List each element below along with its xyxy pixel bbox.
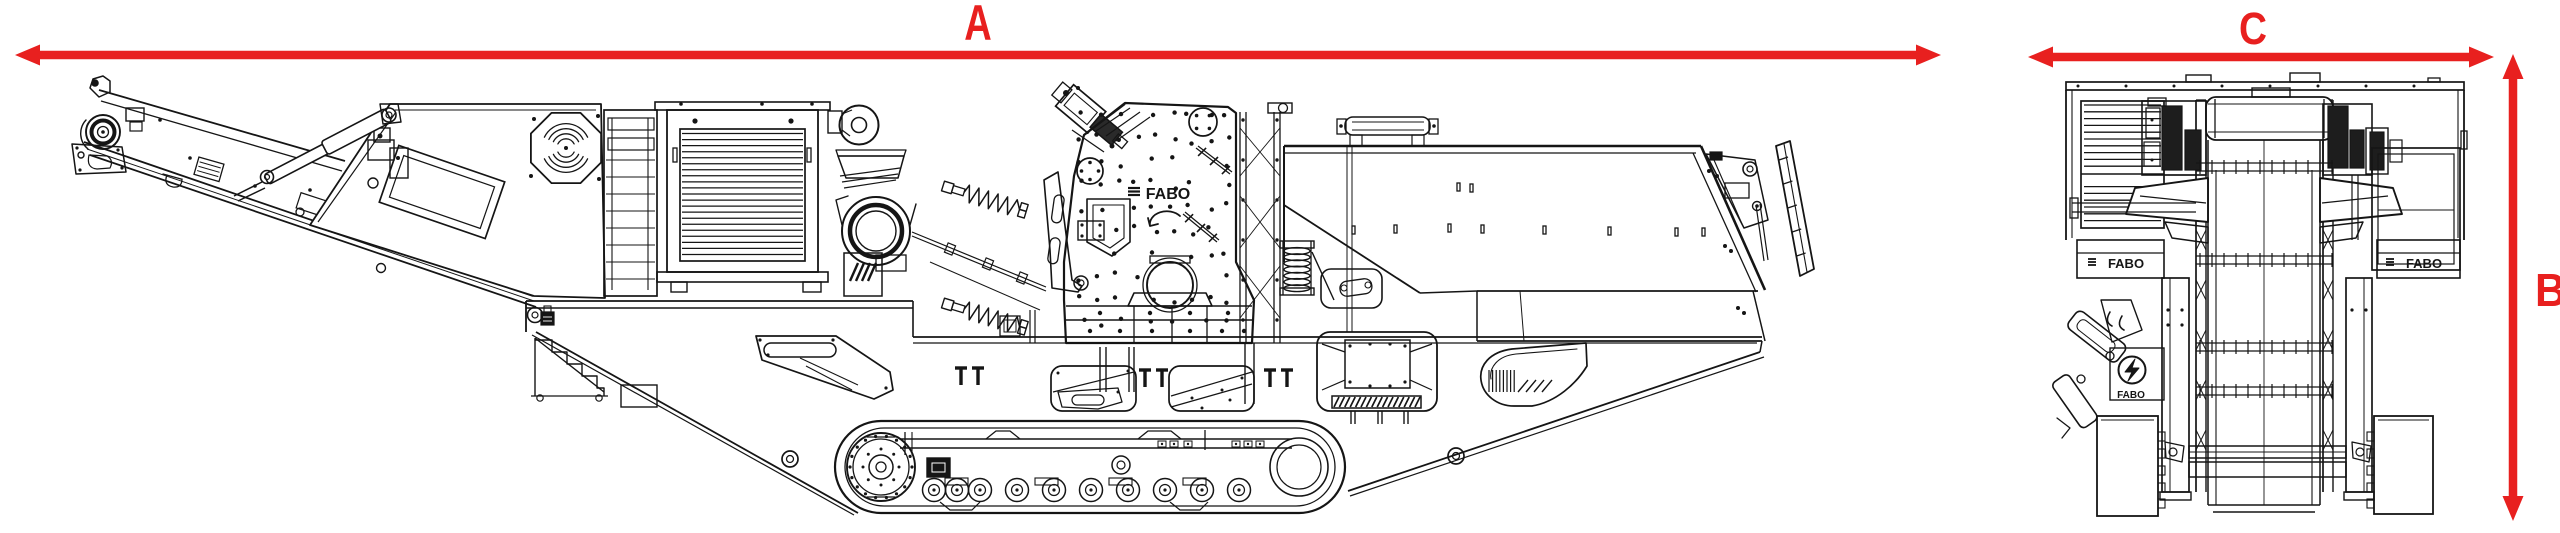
svg-text:FABO: FABO bbox=[1146, 186, 1190, 203]
svg-text:C: C bbox=[2239, 3, 2267, 54]
svg-text:A: A bbox=[964, 0, 992, 51]
svg-text:FABO: FABO bbox=[2108, 256, 2144, 271]
svg-text:FABO: FABO bbox=[2406, 256, 2442, 271]
svg-text:B: B bbox=[2535, 264, 2560, 316]
svg-text:FABO: FABO bbox=[2117, 390, 2145, 401]
